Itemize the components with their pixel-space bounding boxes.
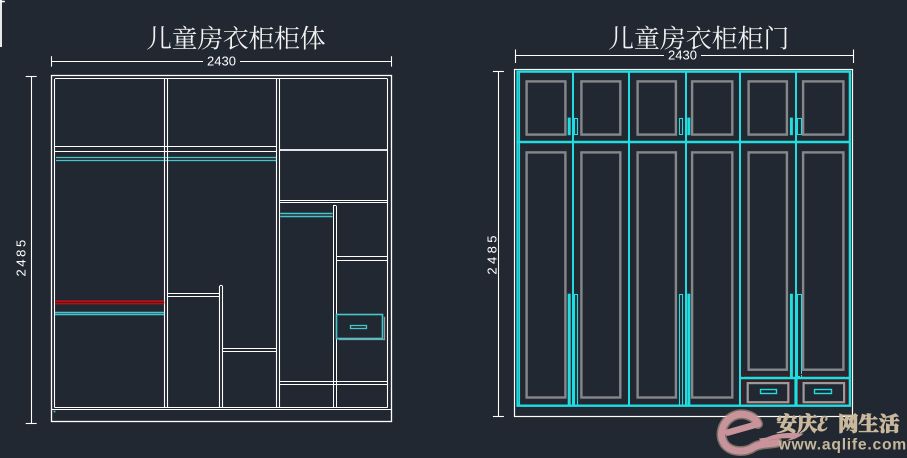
svg-text:2430: 2430: [207, 54, 236, 69]
svg-text:2485: 2485: [14, 237, 29, 276]
svg-text:2485: 2485: [484, 232, 499, 275]
svg-text:2430: 2430: [668, 48, 697, 63]
svg-text:www.aqlife.com: www.aqlife.com: [778, 437, 907, 454]
